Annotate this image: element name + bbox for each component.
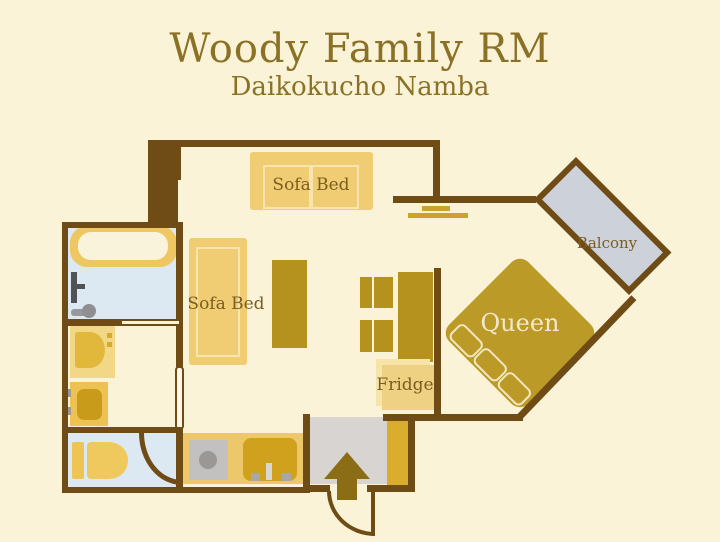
wall-entrance-left	[303, 414, 310, 492]
entrance-door-arc	[327, 491, 375, 536]
label-sofa-bed-top: Sofa Bed	[261, 177, 361, 194]
dining-table	[398, 272, 433, 362]
entrance-arrow-icon	[324, 452, 370, 479]
bathroom-sliding-door	[122, 321, 179, 324]
shoe-cabinet	[387, 419, 408, 486]
wall-entrance-bottom-left	[303, 485, 330, 492]
label-fridge: Fridge	[375, 377, 435, 394]
side-table	[272, 260, 307, 348]
washbasin	[75, 332, 105, 368]
sink-faucet-icon	[266, 463, 272, 480]
wall-middle-vertical-upper	[176, 222, 183, 367]
sink-faucet-icon	[251, 473, 260, 481]
floorplan-canvas: Woody Family RM Daikokucho Namba	[0, 0, 720, 542]
sink-faucet-icon	[282, 473, 291, 481]
window-mark	[422, 206, 450, 211]
wall-bottom-right	[383, 414, 523, 421]
window-mark	[408, 213, 468, 218]
toilet-bowl	[87, 442, 128, 479]
wall-pillar	[148, 140, 181, 225]
label-sofa-bed-left: Sofa Bed	[186, 296, 266, 313]
wall-pillar-gap	[178, 180, 181, 223]
bathtub-inner	[78, 232, 168, 260]
shower-head-icon	[82, 304, 96, 318]
dining-chair	[374, 277, 393, 308]
page-subtitle: Daikokucho Namba	[0, 72, 720, 102]
wall-right-upper	[433, 140, 440, 202]
stove-burner-icon	[199, 451, 217, 469]
dining-chair	[374, 320, 393, 352]
wall-bottom-outer	[62, 487, 310, 493]
washbasin-tap-icon	[107, 333, 112, 338]
page-title: Woody Family RM	[0, 26, 720, 72]
washbasin-tap-icon	[107, 342, 112, 347]
dining-chair	[360, 277, 372, 308]
wall-upper-right-horizontal	[393, 196, 536, 203]
wall-top	[178, 140, 440, 147]
wall-left-outer	[62, 222, 68, 493]
label-queen-bed: Queen	[470, 311, 570, 335]
hall-door-leaf	[175, 366, 184, 430]
label-balcony: Balcony	[572, 236, 642, 251]
washing-machine-door	[77, 389, 102, 420]
shower-knob-icon	[77, 284, 85, 289]
wall-bathroom-top	[62, 222, 183, 228]
wall-entrance-right	[408, 417, 415, 492]
balcony-area	[534, 157, 672, 295]
toilet-tank	[72, 442, 84, 479]
wall-bedroom-divider	[434, 268, 441, 420]
dining-chair	[360, 320, 372, 352]
